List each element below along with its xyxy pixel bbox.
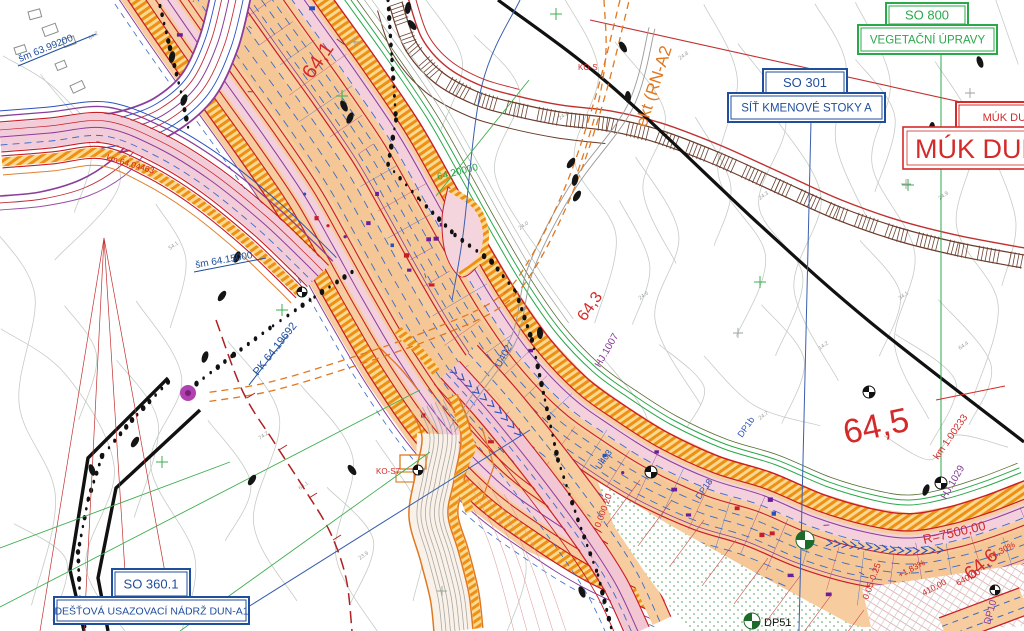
svg-text:MÚK DUB: MÚK DUB: [983, 111, 1024, 124]
svg-text:KO-S7: KO-S7: [376, 467, 401, 476]
svg-text:SO 800: SO 800: [905, 8, 949, 23]
svg-text:KO-S: KO-S: [578, 63, 598, 72]
svg-text:DP51: DP51: [764, 617, 792, 629]
svg-text:VEGETAČNÍ ÚPRAVY: VEGETAČNÍ ÚPRAVY: [870, 34, 986, 47]
svg-text:DEŠŤOVÁ USAZOVACÍ NÁDRŽ DUN-A1: DEŠŤOVÁ USAZOVACÍ NÁDRŽ DUN-A1: [54, 604, 248, 617]
svg-text:SÍŤ KMENOVÉ STOKY A: SÍŤ KMENOVÉ STOKY A: [741, 102, 872, 115]
svg-text:SO 360.1: SO 360.1: [124, 577, 179, 592]
svg-text:SO 301: SO 301: [783, 75, 827, 90]
svg-text:MÚK DUB: MÚK DUB: [915, 133, 1024, 164]
